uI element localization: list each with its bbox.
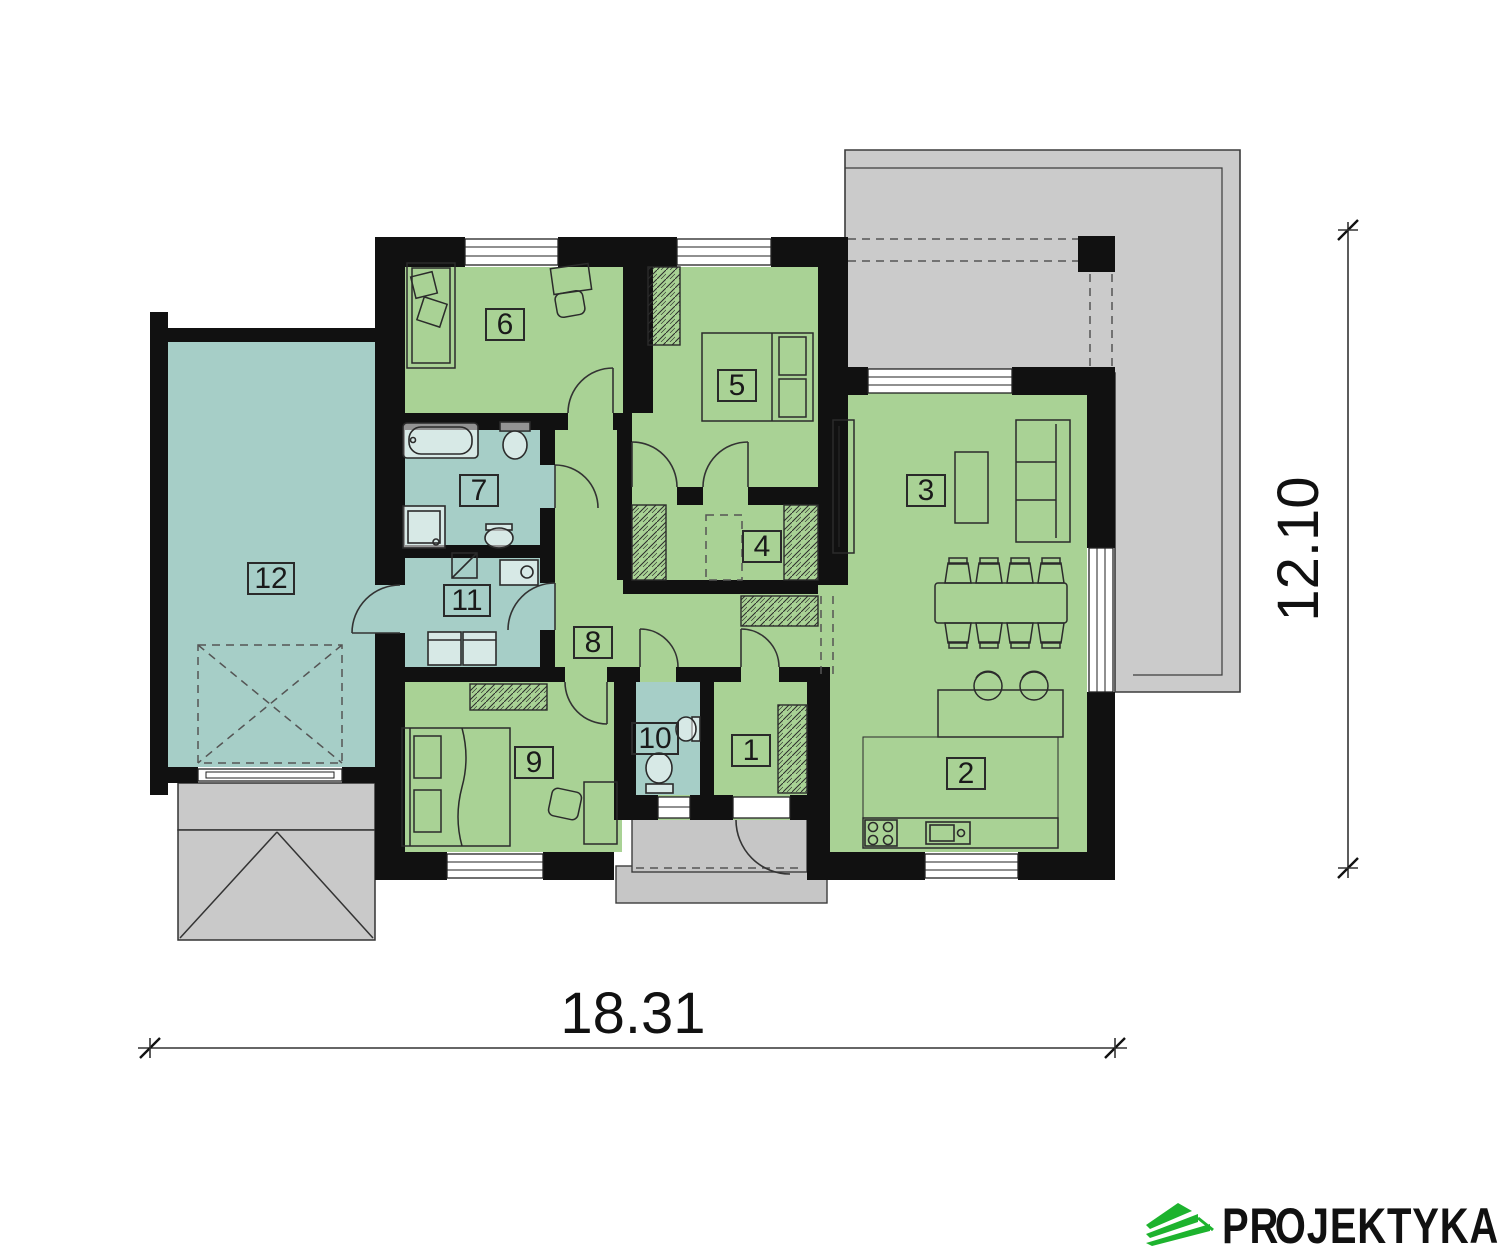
dimension-height: 12.10	[1266, 220, 1358, 878]
window-room9	[447, 854, 543, 878]
porch-slab	[632, 818, 807, 872]
front-door-leaf	[733, 797, 790, 818]
svg-text:9: 9	[526, 746, 543, 779]
logo: PR O JEKTYKA	[1146, 1198, 1499, 1253]
terrace-sliding-door	[1089, 548, 1113, 692]
entry-porch	[616, 818, 827, 903]
window-kitchen	[925, 854, 1018, 878]
dimension-width: 18.31	[138, 981, 1127, 1058]
floor-plan-page: 1 2 3 4 5 6 7 8	[0, 0, 1500, 1253]
wardrobe	[648, 267, 680, 345]
svg-text:4: 4	[754, 530, 771, 563]
dimension-height-label: 12.10	[1266, 476, 1331, 621]
sink	[485, 528, 513, 548]
logo-building-icon	[1146, 1203, 1213, 1246]
svg-text:5: 5	[729, 369, 746, 402]
wc-toilet-tank	[646, 784, 673, 793]
floor-plan-canvas: 1 2 3 4 5 6 7 8	[0, 0, 1500, 1253]
wardrobe	[784, 505, 818, 580]
logo-text-o: O	[1275, 1198, 1307, 1253]
logo-text-post: JEKTYKA	[1307, 1198, 1499, 1253]
garage-canopy	[178, 783, 375, 940]
hall-wardrobe	[741, 596, 818, 626]
wardrobe	[470, 684, 547, 710]
svg-text:12: 12	[254, 562, 287, 595]
canopy-roof	[178, 830, 375, 940]
logo-text-pre: PR	[1222, 1198, 1279, 1253]
svg-text:6: 6	[497, 308, 514, 341]
svg-text:7: 7	[471, 474, 488, 507]
svg-text:1: 1	[743, 734, 760, 767]
dryer	[463, 632, 496, 665]
wardrobe	[632, 505, 666, 580]
room-label-10: 10	[632, 722, 678, 755]
wc-toilet-bowl	[646, 753, 672, 783]
window-wc	[658, 797, 690, 818]
svg-text:8: 8	[585, 626, 602, 659]
canopy-slab	[178, 783, 375, 830]
toilet-tank	[500, 422, 530, 431]
garage-door	[198, 769, 342, 781]
window-room5	[677, 239, 771, 265]
svg-text:2: 2	[958, 757, 975, 790]
entry-wardrobe	[778, 705, 807, 793]
svg-text:11: 11	[451, 584, 482, 617]
svg-text:3: 3	[918, 474, 935, 507]
logo-wordmark: PR O JEKTYKA	[1222, 1198, 1499, 1253]
svg-text:10: 10	[638, 722, 671, 755]
room-label-12: 12	[248, 562, 294, 595]
washing-machine	[428, 632, 461, 665]
window-room6	[465, 239, 558, 265]
toilet-bowl	[503, 431, 527, 459]
dimension-width-label: 18.31	[560, 981, 705, 1046]
window-living-top	[868, 369, 1012, 393]
terrace-column	[1078, 236, 1115, 272]
